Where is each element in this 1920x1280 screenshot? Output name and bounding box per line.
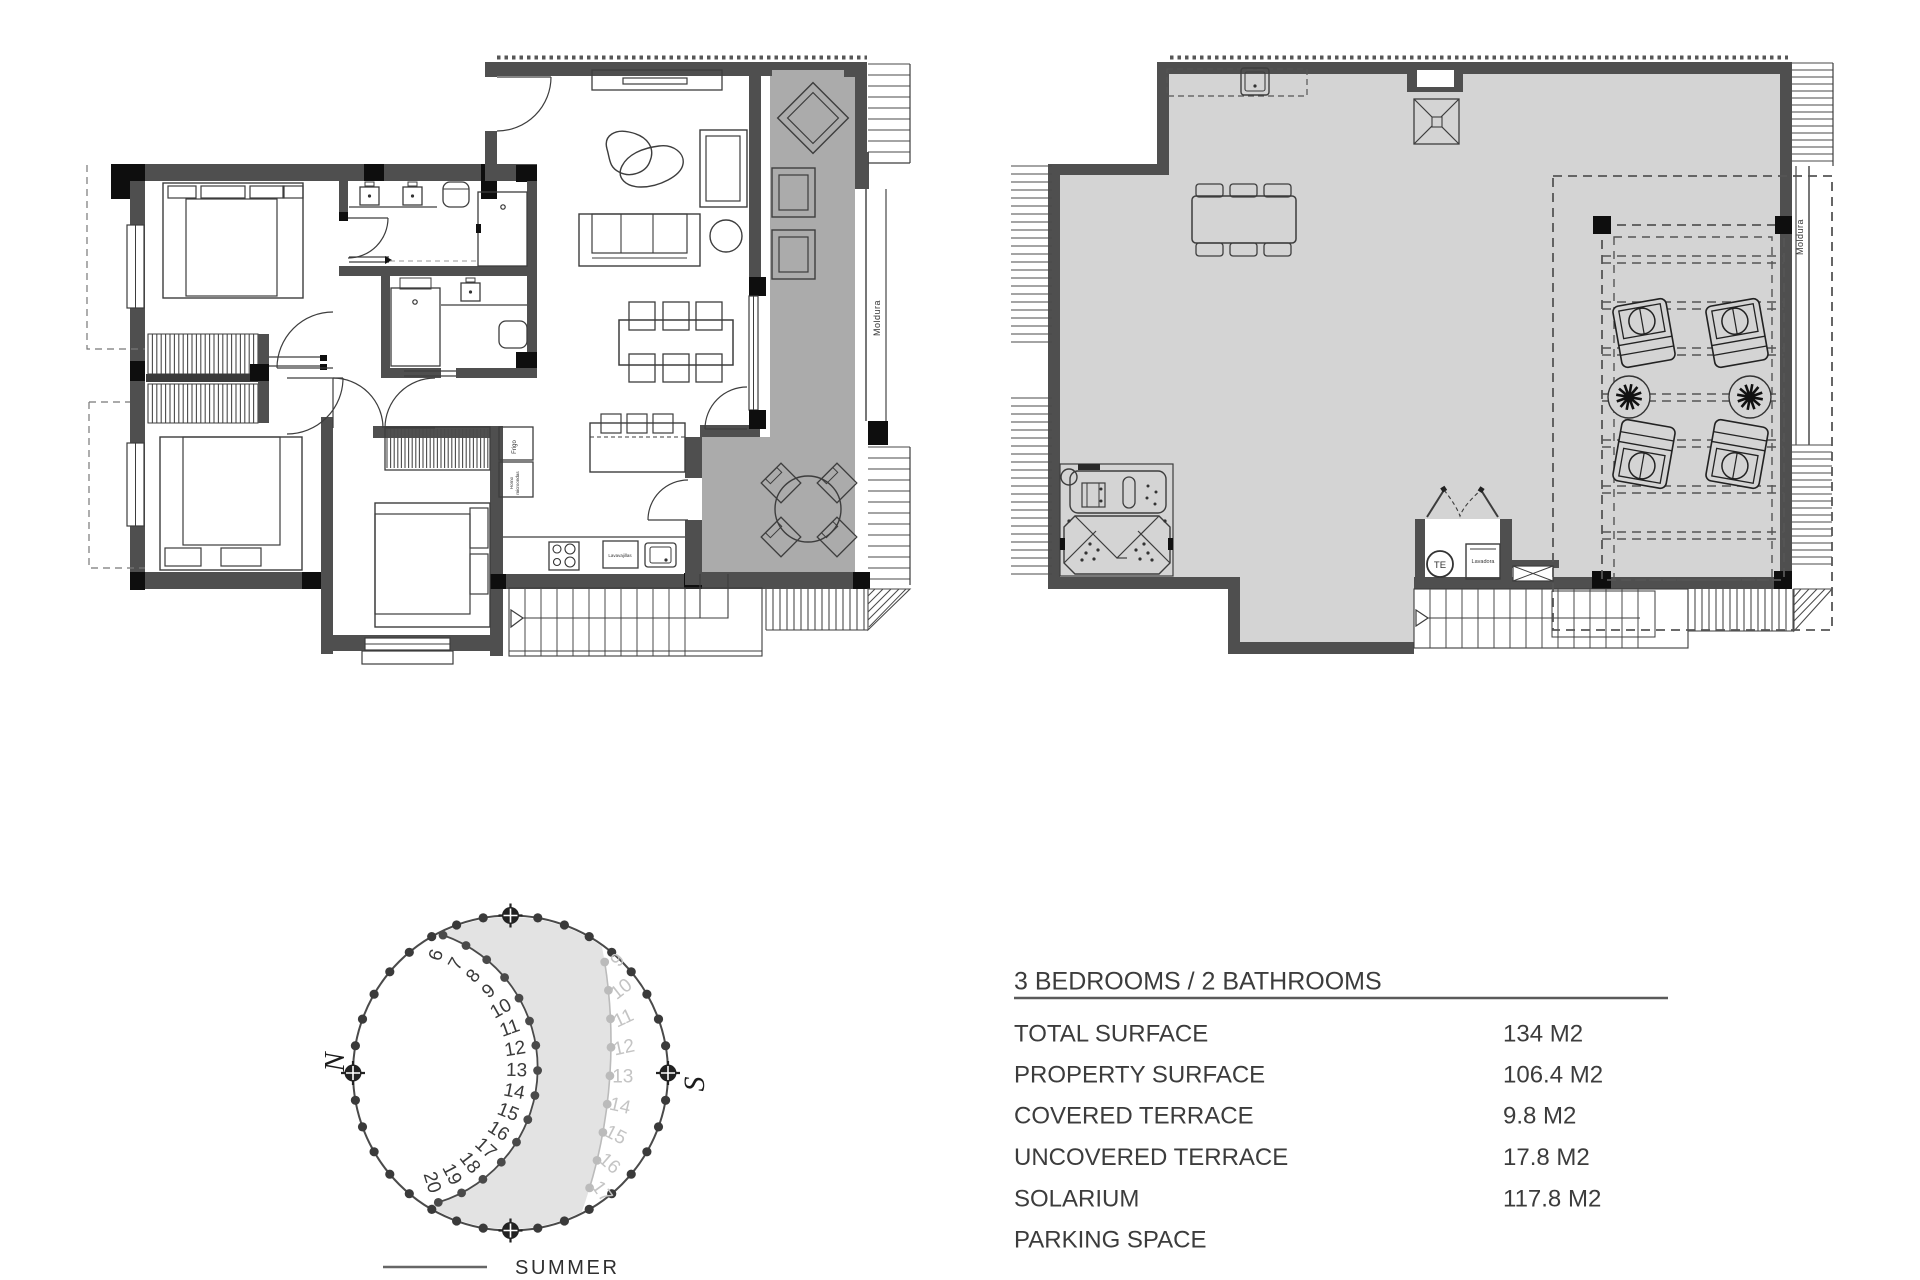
svg-text:106.4 M2: 106.4 M2 [1503,1062,1603,1089]
svg-text:Lavadora: Lavadora [1472,559,1496,565]
svg-text:Lavavajillas: Lavavajillas [608,553,632,558]
svg-text:3 BEDROOMS / 2 BATHROOMS: 3 BEDROOMS / 2 BATHROOMS [1014,968,1382,996]
svg-text:N: N [319,1051,351,1073]
svg-text:Moldura: Moldura [1795,219,1805,255]
svg-text:134 M2: 134 M2 [1503,1021,1583,1048]
svg-text:TOTAL SURFACE: TOTAL SURFACE [1014,1021,1208,1048]
svg-text:COVERED TERRACE: COVERED TERRACE [1014,1103,1254,1130]
svg-text:UNCOVERED TERRACE: UNCOVERED TERRACE [1014,1144,1288,1171]
svg-text:S: S [678,1077,711,1092]
svg-text:PARKING SPACE: PARKING SPACE [1014,1227,1207,1254]
svg-text:Moldura: Moldura [872,300,882,336]
svg-text:Frigo: Frigo [512,440,518,454]
svg-text:PROPERTY SURFACE: PROPERTY SURFACE [1014,1062,1265,1089]
svg-text:12: 12 [503,1037,527,1061]
svg-text:9.8 M2: 9.8 M2 [1503,1103,1576,1130]
svg-text:12: 12 [612,1035,637,1060]
svg-text:17.8 M2: 17.8 M2 [1503,1144,1590,1171]
svg-text:SUMMER: SUMMER [515,1257,620,1279]
svg-text:microondas: microondas [515,471,520,495]
svg-text:SOLARIUM: SOLARIUM [1014,1186,1139,1213]
svg-text:TE: TE [1434,560,1446,571]
svg-text:13: 13 [612,1067,633,1088]
svg-text:13: 13 [506,1060,528,1081]
svg-text:Horno: Horno [509,476,514,489]
svg-text:117.8 M2: 117.8 M2 [1503,1186,1601,1213]
